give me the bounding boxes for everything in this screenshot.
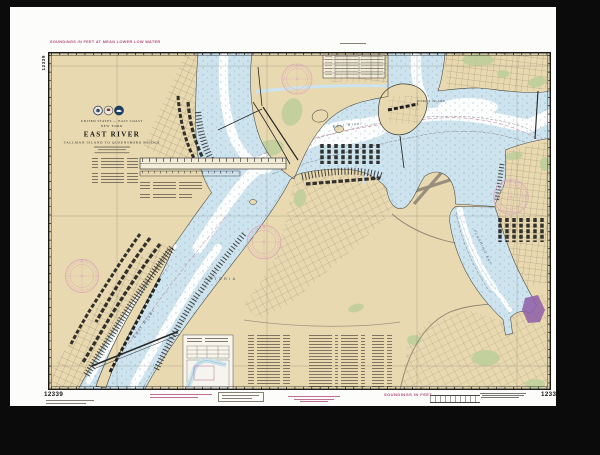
side-chart-number: 12339 [41, 55, 47, 89]
title-region: NEW YORK [101, 124, 123, 128]
title-nation: UNITED STATES — EAST COAST [81, 119, 143, 123]
imprint-microtext [46, 400, 94, 401]
publisher-microtext [481, 397, 519, 398]
center-note-microtext [300, 401, 328, 402]
chart-print: SOUNDINGS IN FEET AT MEAN LOWER LOW WATE… [10, 7, 556, 406]
bridge-clearance-table [323, 55, 385, 78]
top-soundings-note: SOUNDINGS IN FEET AT MEAN LOWER LOW WATE… [50, 40, 160, 44]
top-margin-microtext [340, 43, 366, 44]
margin-note-box [218, 392, 264, 402]
label-astoria: ASTORIA [205, 277, 238, 281]
chart-title: EAST RIVER [84, 131, 140, 139]
nautical-chart: RIKERS ISLAND ASTORIA FLUSHING BAY East … [48, 52, 551, 390]
imprint-microtext [46, 403, 86, 404]
center-note-microtext [294, 399, 334, 400]
chart-number-bottom-right: 12339 [541, 391, 556, 398]
caution-note [92, 157, 138, 170]
compass-rose [247, 225, 281, 259]
bottom-soundings-note: SOUNDINGS IN FEET [384, 392, 432, 397]
tide-panel [183, 335, 233, 390]
compass-rose [282, 63, 312, 94]
compass-rose [494, 179, 529, 214]
chart-subtitle: TALLMAN ISLAND TO QUEENSBORO BRIDGE [64, 141, 160, 145]
compass-rose [66, 259, 99, 293]
edition-note-microtext [150, 397, 198, 398]
publisher-microtext [480, 393, 526, 394]
edition-note-microtext [150, 394, 212, 395]
scale-ruler [430, 395, 480, 403]
mill-rock [250, 200, 257, 205]
chart-number-bottom-left: 12339 [44, 391, 63, 398]
center-note-microtext [288, 396, 340, 397]
label-rikers-island: RIKERS ISLAND [417, 99, 446, 103]
publisher-microtext [482, 395, 524, 396]
framed-chart-photo: SOUNDINGS IN FEET AT MEAN LOWER LOW WATE… [0, 0, 600, 455]
